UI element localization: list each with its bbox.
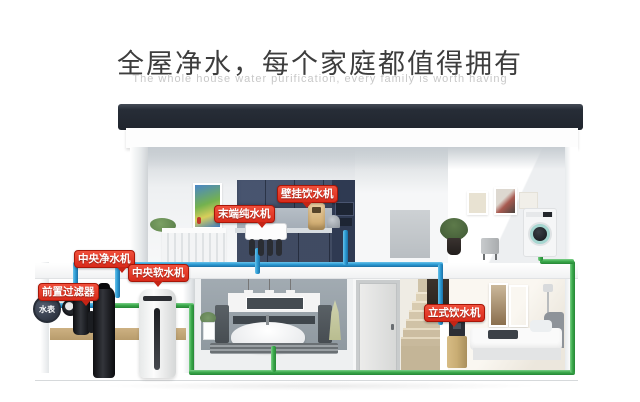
bin-leg — [483, 254, 485, 260]
poster-canvas: 全屋净水，每个家庭都值得拥有 The whole house water pur… — [0, 0, 640, 402]
upper-mid-wall — [355, 147, 448, 263]
softener-window — [154, 308, 160, 370]
bin-leg — [495, 254, 497, 260]
roof — [118, 104, 583, 130]
soft-pipe-laundry-run — [540, 259, 574, 264]
bed-throw — [488, 330, 518, 339]
wall-picture — [494, 187, 517, 215]
floor-lamp-icon — [547, 290, 549, 314]
washing-machine — [523, 208, 557, 257]
pendant-cord — [290, 278, 291, 290]
house-shadow — [100, 381, 540, 391]
plant-pot — [447, 238, 461, 255]
shelf-tower — [215, 305, 229, 343]
soft-pipe-bottom-run — [189, 370, 575, 375]
half-wall-panel — [390, 210, 430, 258]
label-central-purifier: 中央净水机 — [74, 250, 135, 268]
left-exterior-wall — [130, 147, 148, 263]
water-softener-unit — [139, 289, 176, 378]
filter-cartridge — [267, 239, 273, 256]
dispenser-body — [447, 336, 467, 368]
soft-pipe-tub-stub — [271, 346, 276, 372]
label-terminal-purifier: 末端纯水机 — [214, 205, 275, 223]
bath-plant-pot — [203, 322, 215, 340]
soft-pipe-downfeed — [189, 305, 194, 373]
tub-faucet-icon — [266, 315, 269, 325]
tank-cap — [98, 283, 110, 289]
kettle — [327, 215, 340, 228]
under-sink-purifier — [245, 223, 285, 257]
door-handle-icon — [391, 324, 394, 330]
label-pre-filter: 前置过滤器 — [38, 283, 99, 301]
softener-panel — [143, 296, 172, 301]
hallway-wall — [353, 278, 402, 373]
floor-lamp-shade — [543, 284, 553, 292]
label-standing-dispenser: 立式饮水机 — [424, 304, 485, 322]
washer-door-icon — [528, 222, 552, 246]
stair-step — [401, 337, 440, 346]
label-wall-dispenser: 壁挂饮水机 — [277, 185, 338, 203]
washer-display — [543, 212, 552, 217]
label-central-softener: 中央软水机 — [128, 264, 189, 282]
house-cutaway-illustration: 水表 壁挂饮水机 末端纯水机 中央净水机 中央软水机 前置过滤器 立式饮水机 — [0, 90, 640, 402]
filter-cartridge — [249, 239, 255, 256]
stair-step — [403, 328, 440, 337]
bed-base — [473, 348, 561, 360]
wall-picture — [489, 283, 508, 327]
laundry-bin — [481, 238, 499, 254]
wall-picture — [519, 192, 538, 209]
flower-vase — [197, 217, 201, 224]
vanity-mirror — [246, 297, 304, 310]
cold-pipe-dispenser-drop — [343, 230, 348, 265]
filter-cartridge — [276, 239, 282, 256]
interior-door — [359, 283, 397, 372]
pendant-cord — [269, 278, 270, 290]
filter-cartridge — [258, 239, 264, 256]
bed-pillow — [530, 320, 552, 332]
page-subtitle: The whole house water purification, ever… — [0, 73, 640, 85]
stair-base — [401, 346, 440, 373]
oven-icon — [335, 202, 354, 216]
pendant-cord — [248, 278, 249, 290]
wall-picture — [467, 191, 488, 215]
soft-pipe-right-riser — [570, 261, 575, 373]
wall-picture — [509, 285, 528, 327]
roof-fascia — [126, 128, 578, 148]
dispenser-screen — [312, 207, 321, 213]
